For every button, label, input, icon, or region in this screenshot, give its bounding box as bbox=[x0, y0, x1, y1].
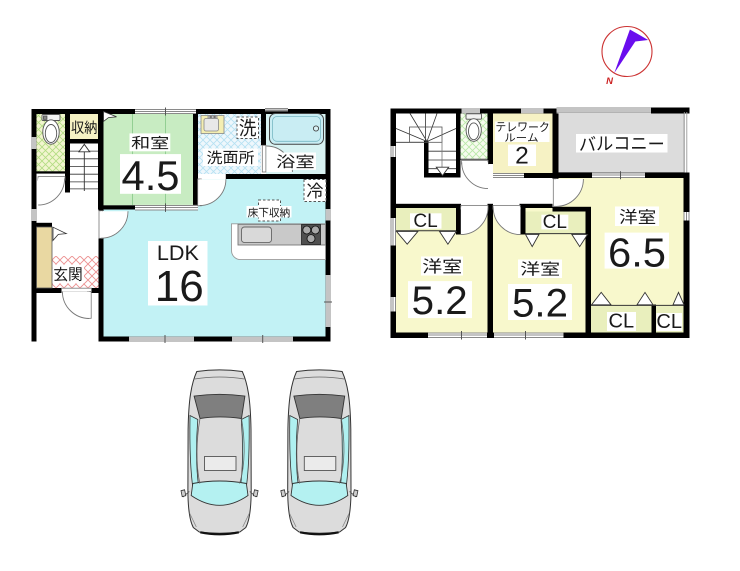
svg-text:CL: CL bbox=[543, 212, 567, 233]
svg-text:CL: CL bbox=[609, 311, 635, 333]
svg-text:16: 16 bbox=[155, 262, 204, 311]
svg-text:CL: CL bbox=[413, 211, 437, 232]
svg-text:N: N bbox=[606, 76, 614, 87]
svg-text:5.2: 5.2 bbox=[512, 282, 568, 326]
svg-text:2: 2 bbox=[515, 142, 529, 169]
svg-text:4.5: 4.5 bbox=[122, 152, 180, 199]
svg-text:6.5: 6.5 bbox=[608, 229, 666, 275]
svg-text:CL: CL bbox=[656, 311, 682, 333]
svg-text:5.2: 5.2 bbox=[412, 279, 468, 323]
